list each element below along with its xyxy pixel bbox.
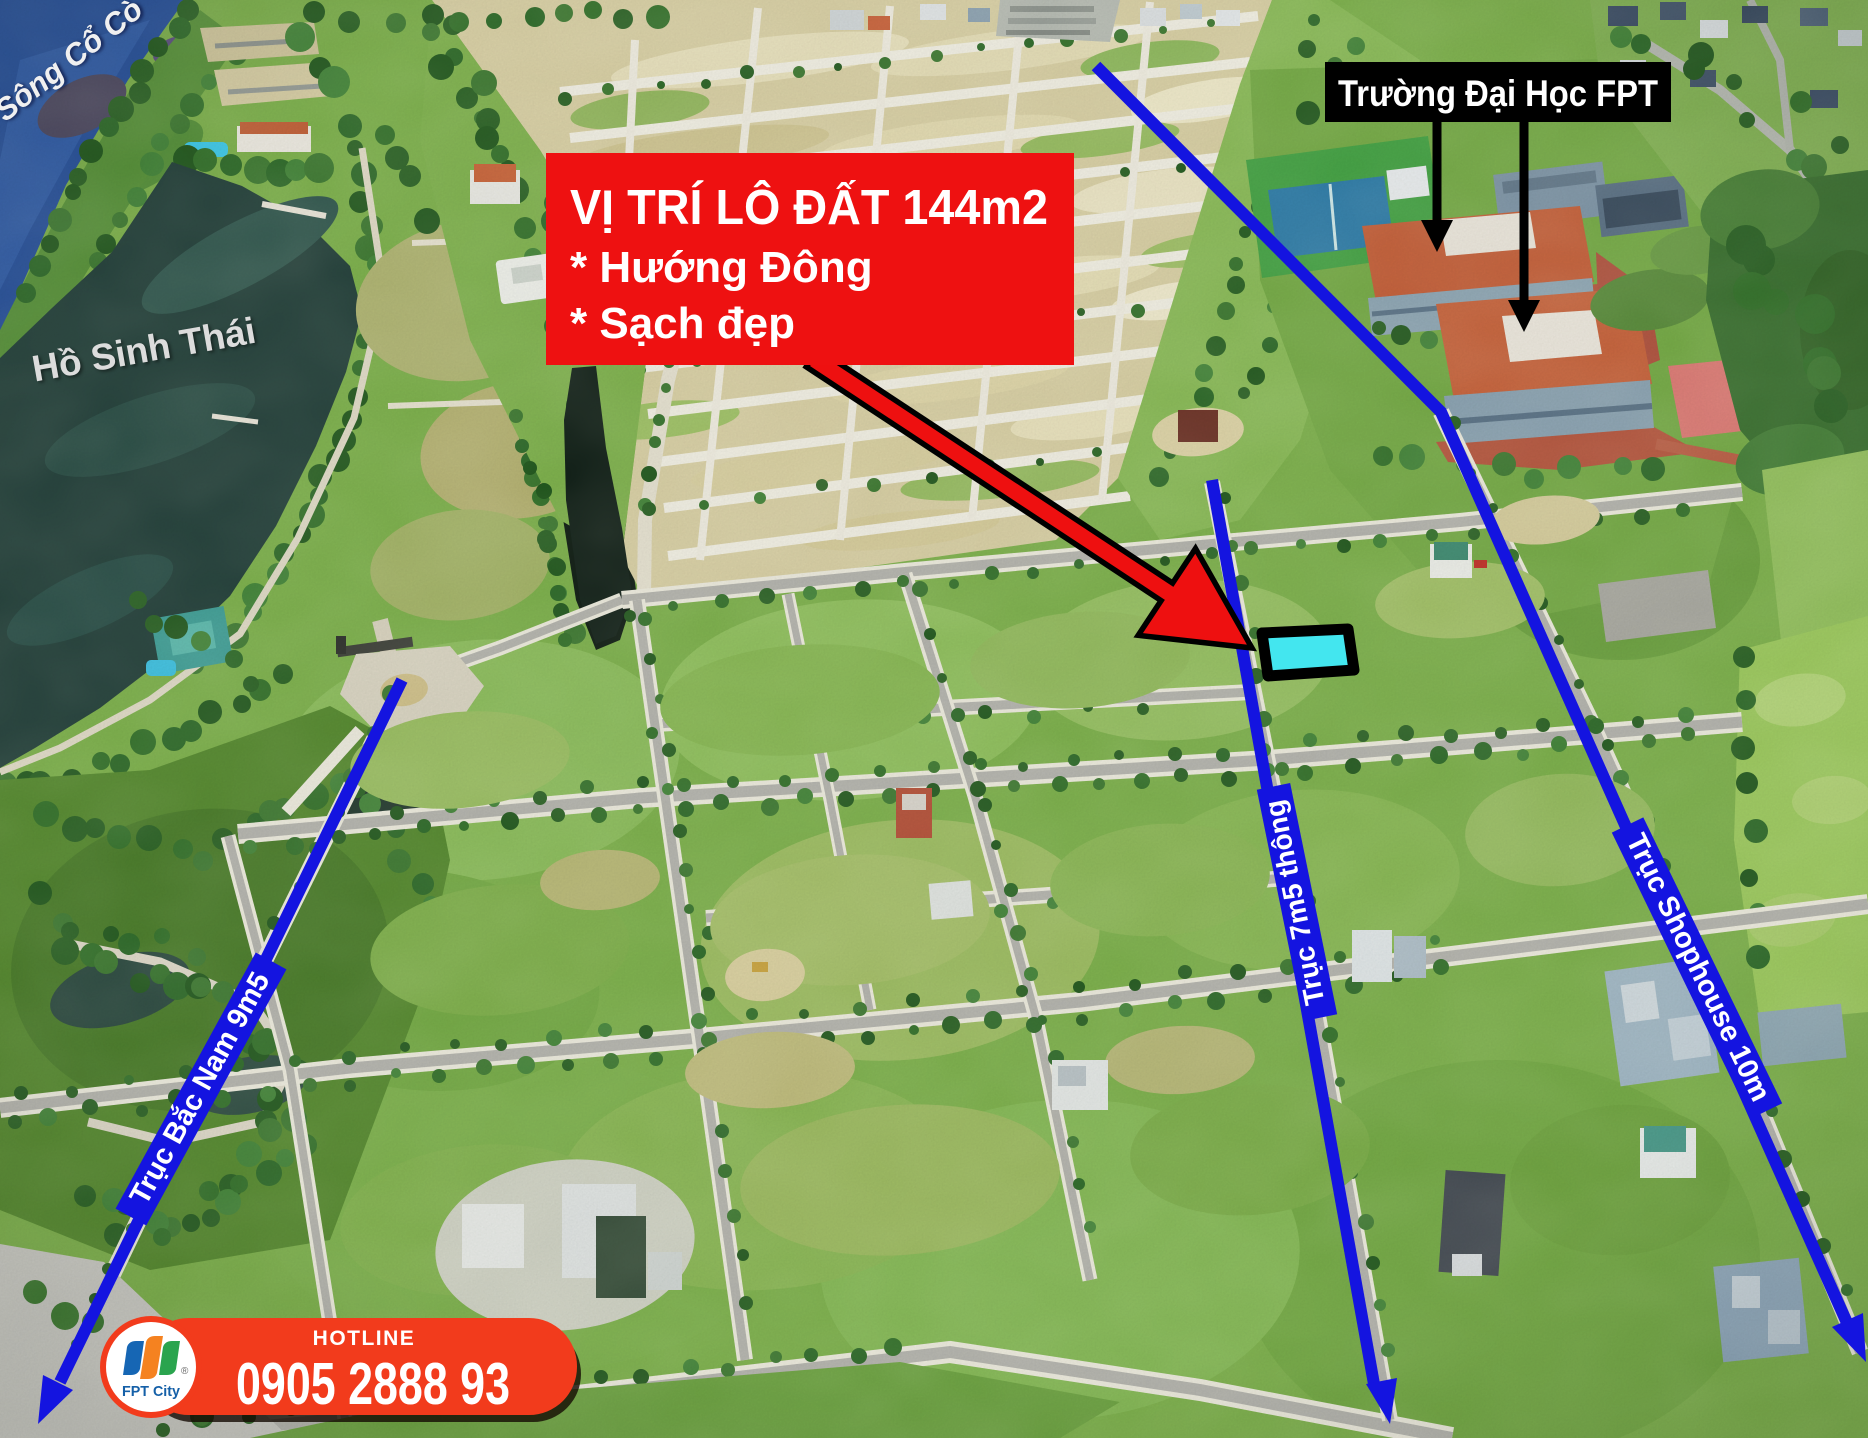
svg-text:FPT City: FPT City [122,1383,181,1400]
svg-text:0905 2888 93: 0905 2888 93 [236,1351,510,1417]
svg-text:Trường Đại Học FPT: Trường Đại Học FPT [1338,73,1658,114]
svg-text:* Hướng Đông: * Hướng Đông [570,243,873,292]
svg-text:VỊ TRÍ LÔ ĐẤT 144m2: VỊ TRÍ LÔ ĐẤT 144m2 [570,180,1048,235]
svg-text:®: ® [181,1366,189,1377]
svg-text:* Sạch đẹp: * Sạch đẹp [570,299,795,348]
svg-text:HOTLINE: HOTLINE [313,1327,416,1350]
